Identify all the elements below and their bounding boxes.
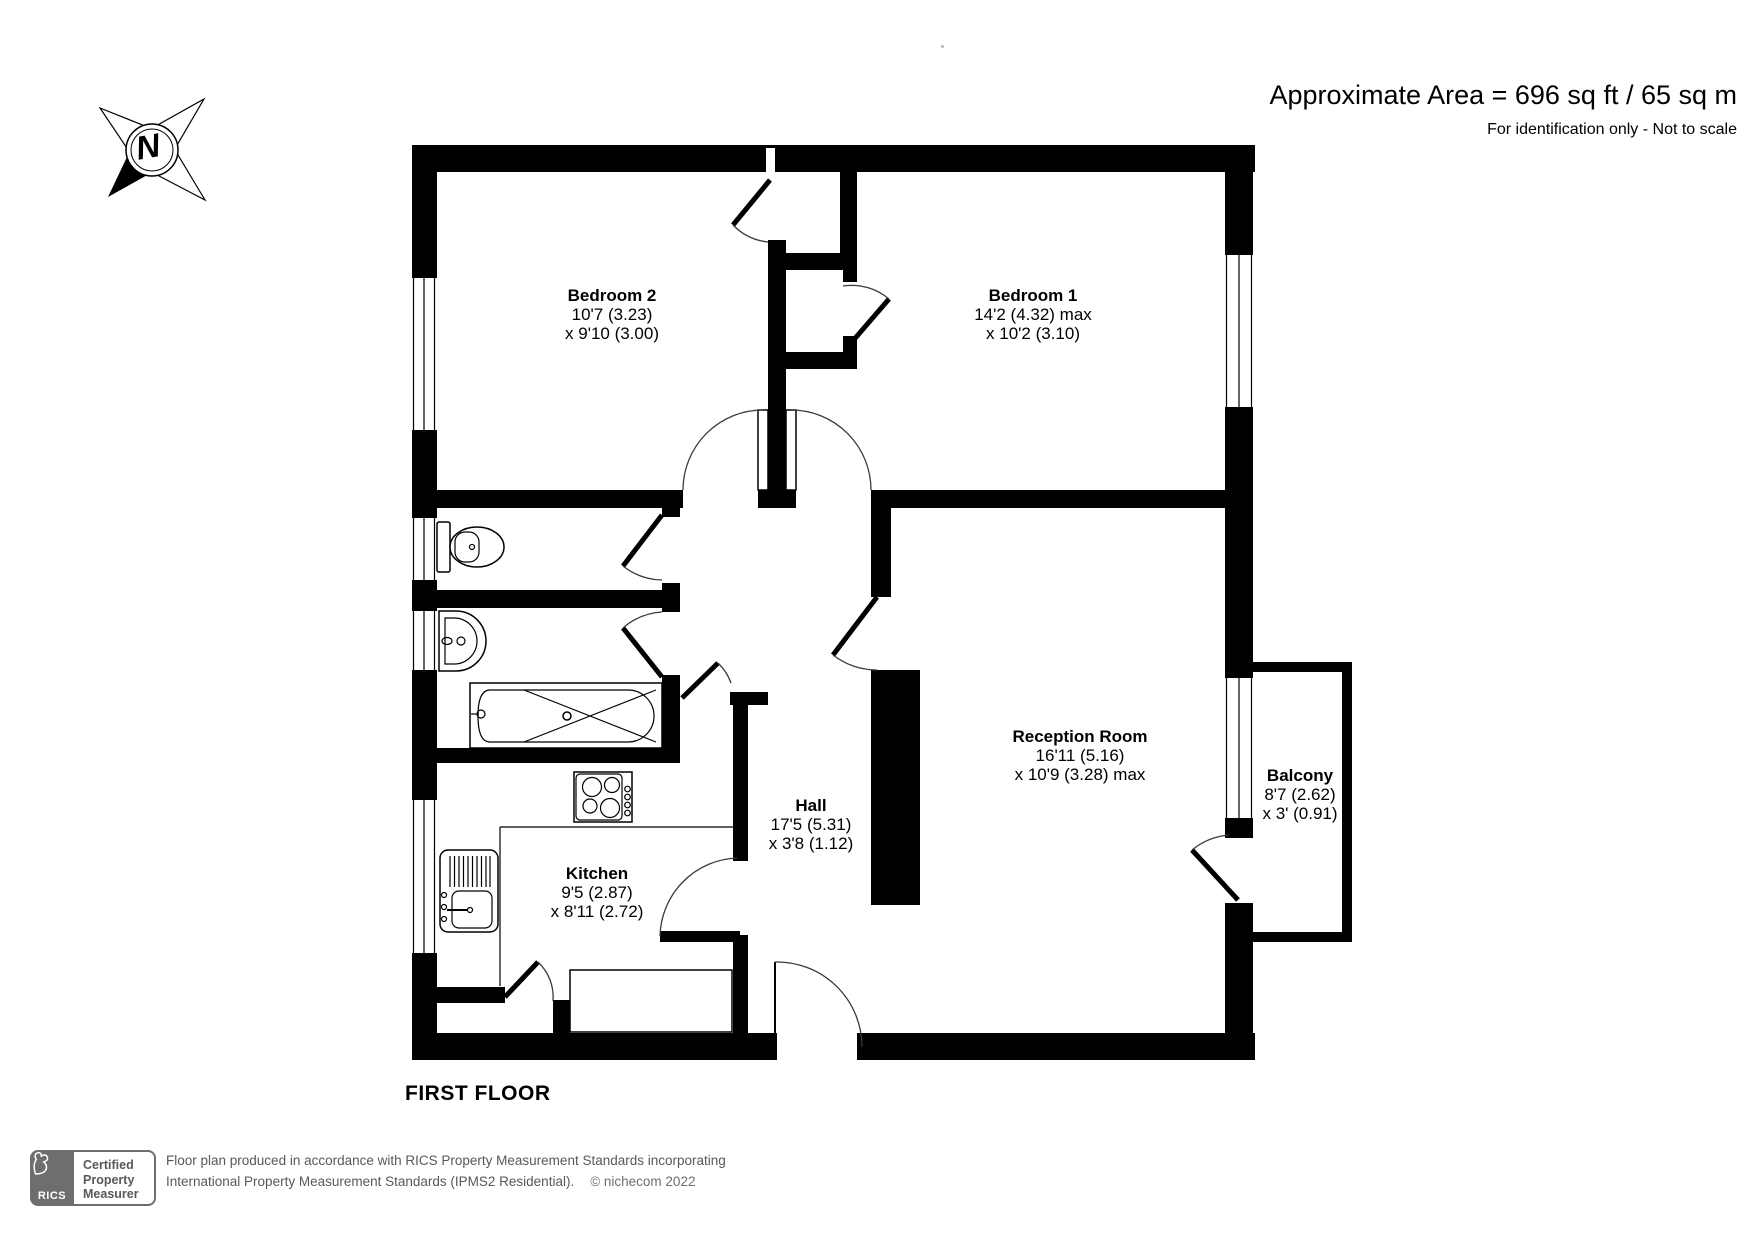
kitchen-lobby-door: [505, 962, 553, 1001]
room-dim1: 14'2 (4.32) max: [974, 305, 1092, 324]
room-dim1: 10'7 (3.23): [565, 305, 659, 324]
room-label-bedroom-1: Bedroom 1 14'2 (4.32) max x 10'2 (3.10): [974, 286, 1092, 343]
hob-icon: [574, 772, 632, 822]
room-label-balcony: Balcony 8'7 (2.62) x 3' (0.91): [1262, 766, 1337, 823]
room-name: Bedroom 2: [565, 286, 659, 305]
reception-door: [833, 597, 877, 670]
certified-property-measurer-label: Certified Property Measurer: [74, 1150, 156, 1206]
room-dim2: x 10'2 (3.10): [974, 324, 1092, 343]
rics-lion-icon: [30, 1150, 52, 1176]
copyright-text: © nichecom 2022: [590, 1174, 695, 1189]
approximate-area-text: Approximate Area = 696 sq ft / 65 sq m: [1269, 80, 1737, 111]
badge-line: Measurer: [83, 1187, 139, 1201]
stray-mark: [941, 45, 944, 48]
room-name: Bedroom 1: [974, 286, 1092, 305]
wc-door: [623, 515, 662, 580]
legal-disclaimer: Floor plan produced in accordance with R…: [166, 1150, 726, 1192]
room-dim1: 16'11 (5.16): [1012, 746, 1147, 765]
room-dim1: 17'5 (5.31): [769, 815, 854, 834]
room-dim2: x 10'9 (3.28) max: [1012, 765, 1147, 784]
rics-badge: RICS Certified Property Measurer: [30, 1150, 156, 1206]
cupboard-door-bedroom2: [733, 180, 770, 242]
toilet-icon: [437, 522, 504, 572]
room-name: Kitchen: [551, 864, 644, 883]
badge-line: Certified: [83, 1158, 134, 1172]
room-name: Reception Room: [1012, 727, 1147, 746]
floorplan-page: N Approximate Area = 696 sq ft / 65 sq m…: [0, 0, 1755, 1241]
footer: RICS Certified Property Measurer Floor p…: [30, 1150, 726, 1206]
kitchen-sink-icon: [440, 850, 498, 932]
rics-logo: RICS: [30, 1150, 74, 1206]
area-header: Approximate Area = 696 sq ft / 65 sq m F…: [1269, 80, 1737, 139]
room-name: Hall: [769, 796, 854, 815]
storage-unit: [570, 970, 732, 1032]
room-dim2: x 9'10 (3.00): [565, 324, 659, 343]
room-dim1: 9'5 (2.87): [551, 883, 644, 902]
legal-line-1: Floor plan produced in accordance with R…: [166, 1150, 726, 1171]
kitchen-door: [660, 858, 740, 942]
bedroom1-door: [786, 410, 871, 490]
room-label-reception-room: Reception Room 16'11 (5.16) x 10'9 (3.28…: [1012, 727, 1147, 784]
floorplan-drawing: [0, 0, 1755, 1241]
badge-line: Property: [83, 1173, 134, 1187]
room-dim2: x 8'11 (2.72): [551, 902, 644, 921]
floor-title: FIRST FLOOR: [405, 1082, 551, 1106]
room-dim1: 8'7 (2.62): [1262, 785, 1337, 804]
kitchen-hall-door: [682, 663, 731, 698]
cupboard-door-bedroom1: [843, 285, 889, 343]
legal-line-2-text: International Property Measurement Stand…: [166, 1174, 574, 1189]
bedroom2-door: [683, 410, 768, 490]
basin-icon: [439, 611, 486, 671]
room-dim2: x 3' (0.91): [1262, 804, 1337, 823]
identification-note: For identification only - Not to scale: [1269, 121, 1737, 139]
room-label-bedroom-2: Bedroom 2 10'7 (3.23) x 9'10 (3.00): [565, 286, 659, 343]
rics-wordmark: RICS: [38, 1190, 66, 1202]
legal-line-2: International Property Measurement Stand…: [166, 1171, 726, 1192]
room-dim2: x 3'8 (1.12): [769, 834, 854, 853]
bathroom-door: [623, 612, 662, 677]
room-name: Balcony: [1262, 766, 1337, 785]
room-label-kitchen: Kitchen 9'5 (2.87) x 8'11 (2.72): [551, 864, 644, 921]
room-label-hall: Hall 17'5 (5.31) x 3'8 (1.12): [769, 796, 854, 853]
bathtub-icon: [470, 683, 662, 748]
